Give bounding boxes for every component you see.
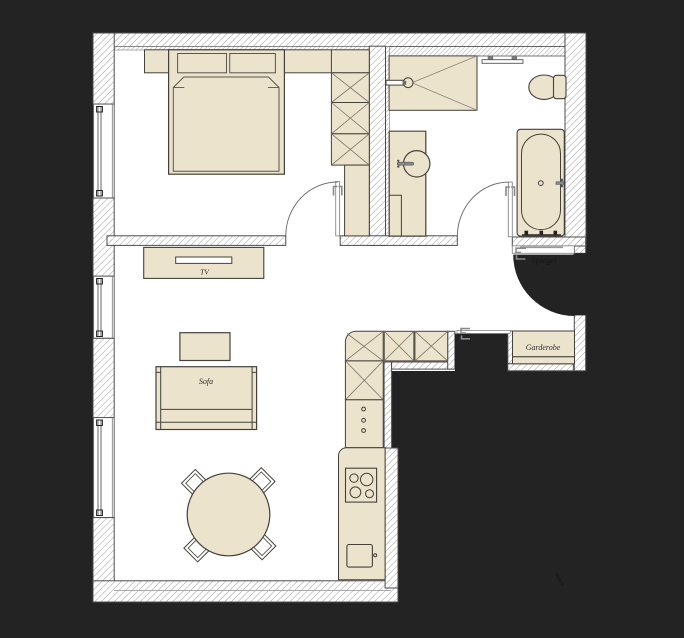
svg-text:Sofa: Sofa: [199, 377, 213, 386]
svg-text:TV: TV: [200, 268, 210, 277]
svg-text:Spiegel: Spiegel: [531, 255, 557, 265]
svg-text:Garderobe: Garderobe: [526, 343, 561, 352]
